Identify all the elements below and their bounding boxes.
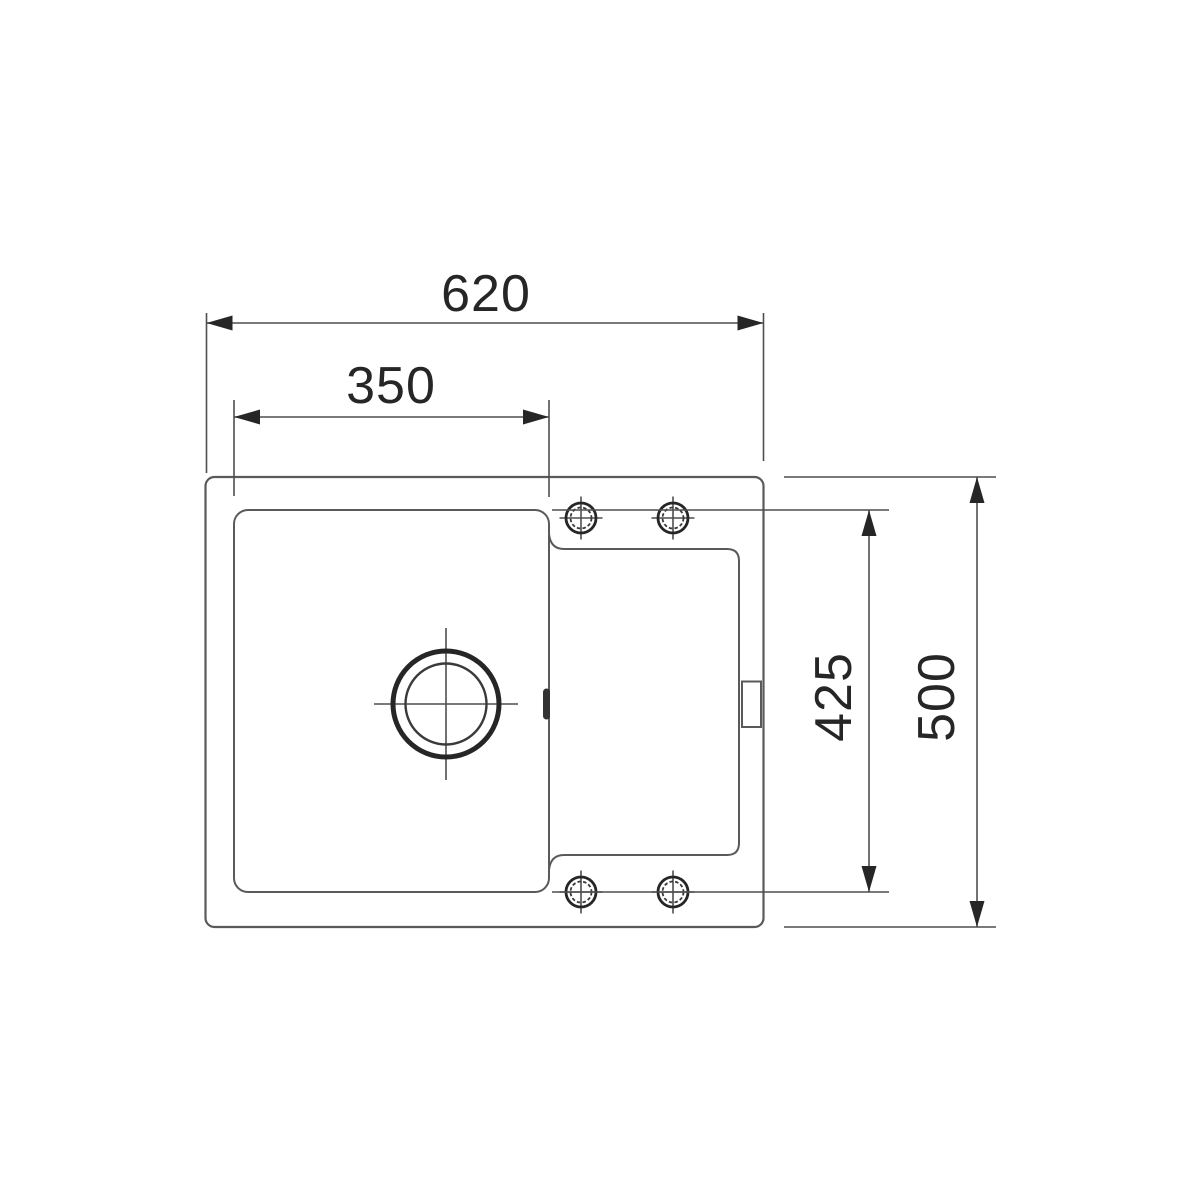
arrowhead-right-icon [738,316,764,331]
faucet-hole-top-left [560,497,603,540]
sink-technical-drawing: 620 350 425 500 [0,0,1200,1200]
dimension-label-500: 500 [908,652,966,742]
arrowhead-up-icon [970,477,985,503]
dimension-overall-width: 620 [207,265,764,473]
sink-outer-outline [206,477,764,927]
dimension-label-620: 620 [441,265,531,323]
arrowhead-left-icon [207,316,233,331]
overflow-tab [742,682,761,728]
dimension-label-425: 425 [805,652,863,742]
arrowhead-down-icon [862,866,877,892]
arrowhead-down-icon [970,901,985,927]
sink-body [206,477,764,927]
dimension-label-350: 350 [346,357,436,415]
arrowhead-right-icon [523,410,549,425]
arrowhead-up-icon [862,510,877,536]
dimension-recess-depth: 425 [552,510,889,892]
drainer-outline [549,534,739,870]
faucet-hole-top-right [652,497,695,540]
arrowhead-left-icon [234,410,260,425]
drain-hole [374,628,518,780]
drawing-canvas: 620 350 425 500 [0,0,1200,1200]
